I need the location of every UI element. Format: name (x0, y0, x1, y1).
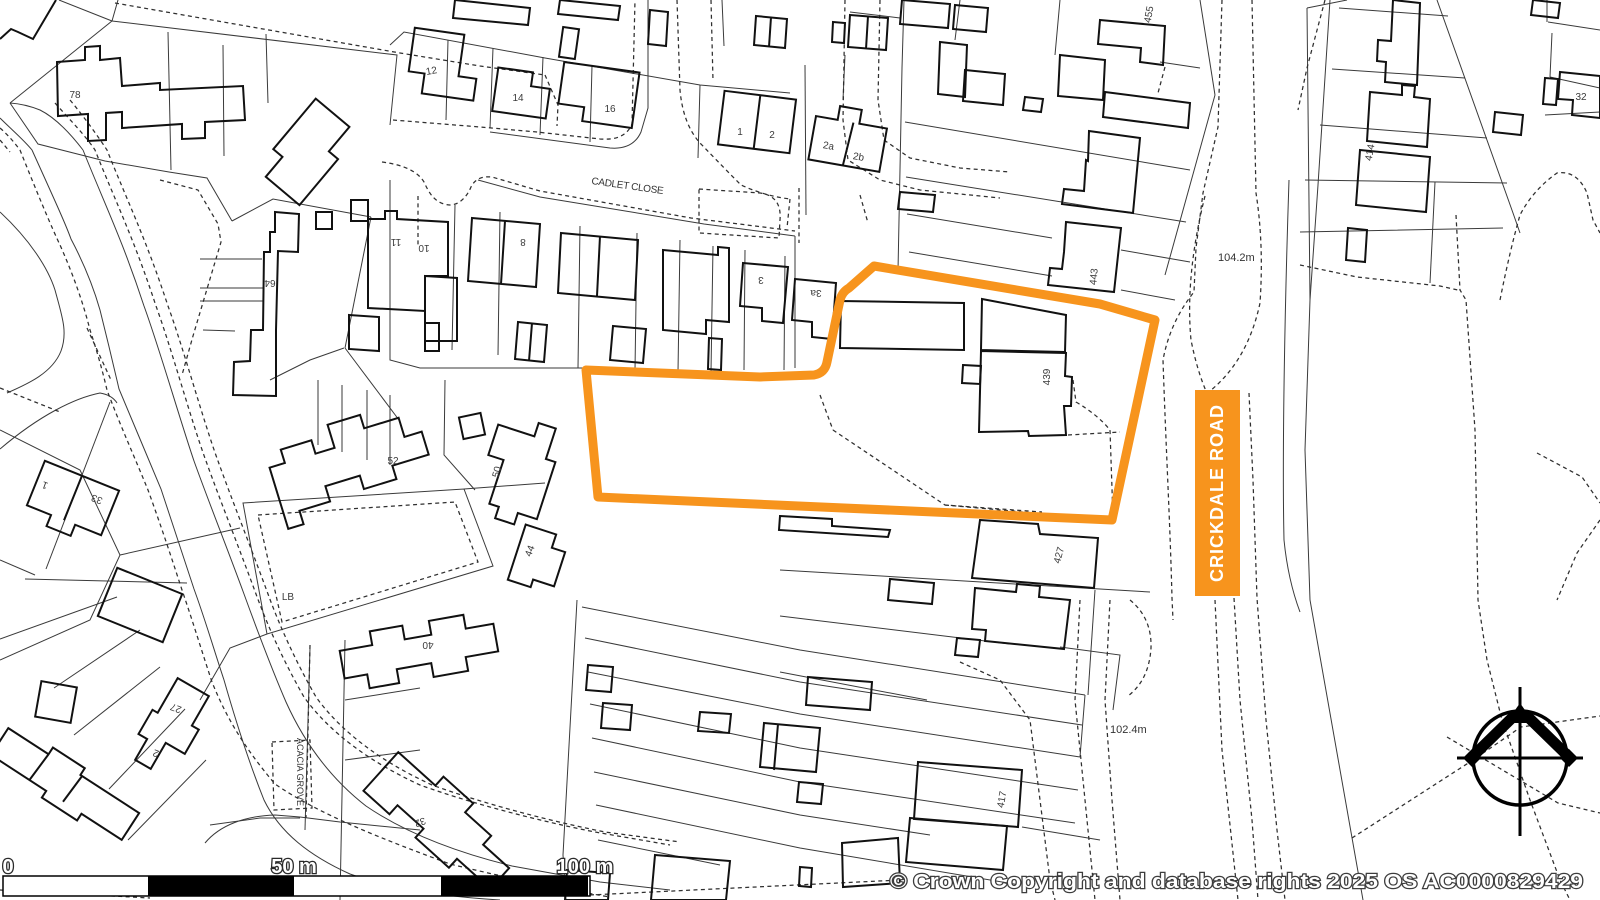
svg-text:LB: LB (282, 592, 295, 603)
svg-text:CRICKDALE ROAD: CRICKDALE ROAD (1207, 404, 1227, 582)
svg-text:104.2m: 104.2m (1218, 252, 1255, 264)
svg-text:14: 14 (512, 93, 524, 104)
svg-text:3: 3 (758, 274, 764, 285)
svg-text:8: 8 (520, 236, 526, 247)
svg-text:10: 10 (418, 242, 430, 253)
svg-text:1: 1 (737, 127, 743, 138)
svg-text:0: 0 (2, 856, 13, 878)
svg-text:3a: 3a (810, 287, 822, 298)
svg-text:52: 52 (387, 456, 399, 467)
svg-text:78: 78 (69, 90, 81, 101)
svg-text:40: 40 (422, 639, 434, 650)
svg-text:50 m: 50 m (271, 856, 317, 878)
svg-text:443: 443 (1088, 268, 1100, 286)
svg-text:32: 32 (1575, 92, 1587, 103)
svg-text:102.4m: 102.4m (1110, 724, 1147, 736)
svg-text:439: 439 (1042, 368, 1053, 385)
svg-text:2: 2 (769, 130, 775, 141)
svg-text:© Crown Copyright and database: © Crown Copyright and database rights 20… (890, 870, 1583, 893)
svg-text:64: 64 (264, 277, 276, 288)
svg-text:16: 16 (604, 104, 616, 115)
svg-text:100 m: 100 m (557, 856, 614, 878)
svg-text:11: 11 (390, 236, 401, 247)
svg-text:ACACIA GROVE: ACACIA GROVE (295, 738, 305, 806)
